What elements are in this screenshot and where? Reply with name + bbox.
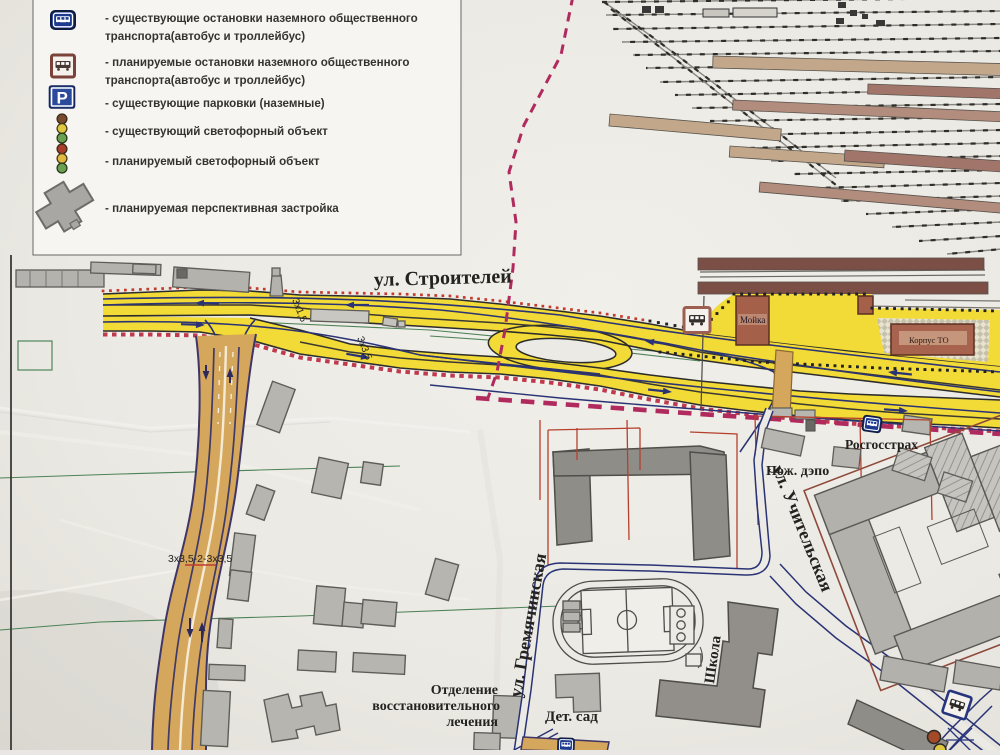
svg-text:восстановительного: восстановительного [372, 699, 500, 714]
svg-text:лечения: лечения [446, 715, 498, 730]
svg-text:транспорта(автобус и троллейбу: транспорта(автобус и троллейбус) [105, 30, 305, 43]
svg-text:- существующие остановки назем: - существующие остановки наземного общес… [105, 12, 418, 25]
svg-text:Дет. сад: Дет. сад [545, 709, 598, 725]
svg-text:Пож. дэпо: Пож. дэпо [766, 464, 829, 479]
svg-text:транспорта(автобус и троллейбу: транспорта(автобус и троллейбус) [105, 74, 305, 87]
svg-text:- существующий светофорный объ: - существующий светофорный объект [105, 125, 328, 138]
svg-text:Корпус ТО: Корпус ТО [909, 335, 949, 345]
svg-text:Мойка: Мойка [740, 315, 765, 325]
svg-text:- планируемый светофорный объе: - планируемый светофорный объект [105, 155, 320, 168]
svg-text:3х3,5-2-3х3,5: 3х3,5-2-3х3,5 [168, 553, 232, 565]
svg-text:ул. Строителей: ул. Строителей [374, 265, 512, 291]
svg-text:- планируемая перспективная за: - планируемая перспективная застройка [105, 202, 339, 215]
svg-text:- существующие парковки (назем: - существующие парковки (наземные) [105, 97, 325, 110]
svg-text:Росгосстрах: Росгосстрах [845, 437, 918, 452]
svg-text:Отделение: Отделение [431, 683, 498, 698]
svg-text:- планируемые остановки наземн: - планируемые остановки наземного общест… [105, 56, 409, 69]
svg-text:P: P [57, 89, 68, 108]
